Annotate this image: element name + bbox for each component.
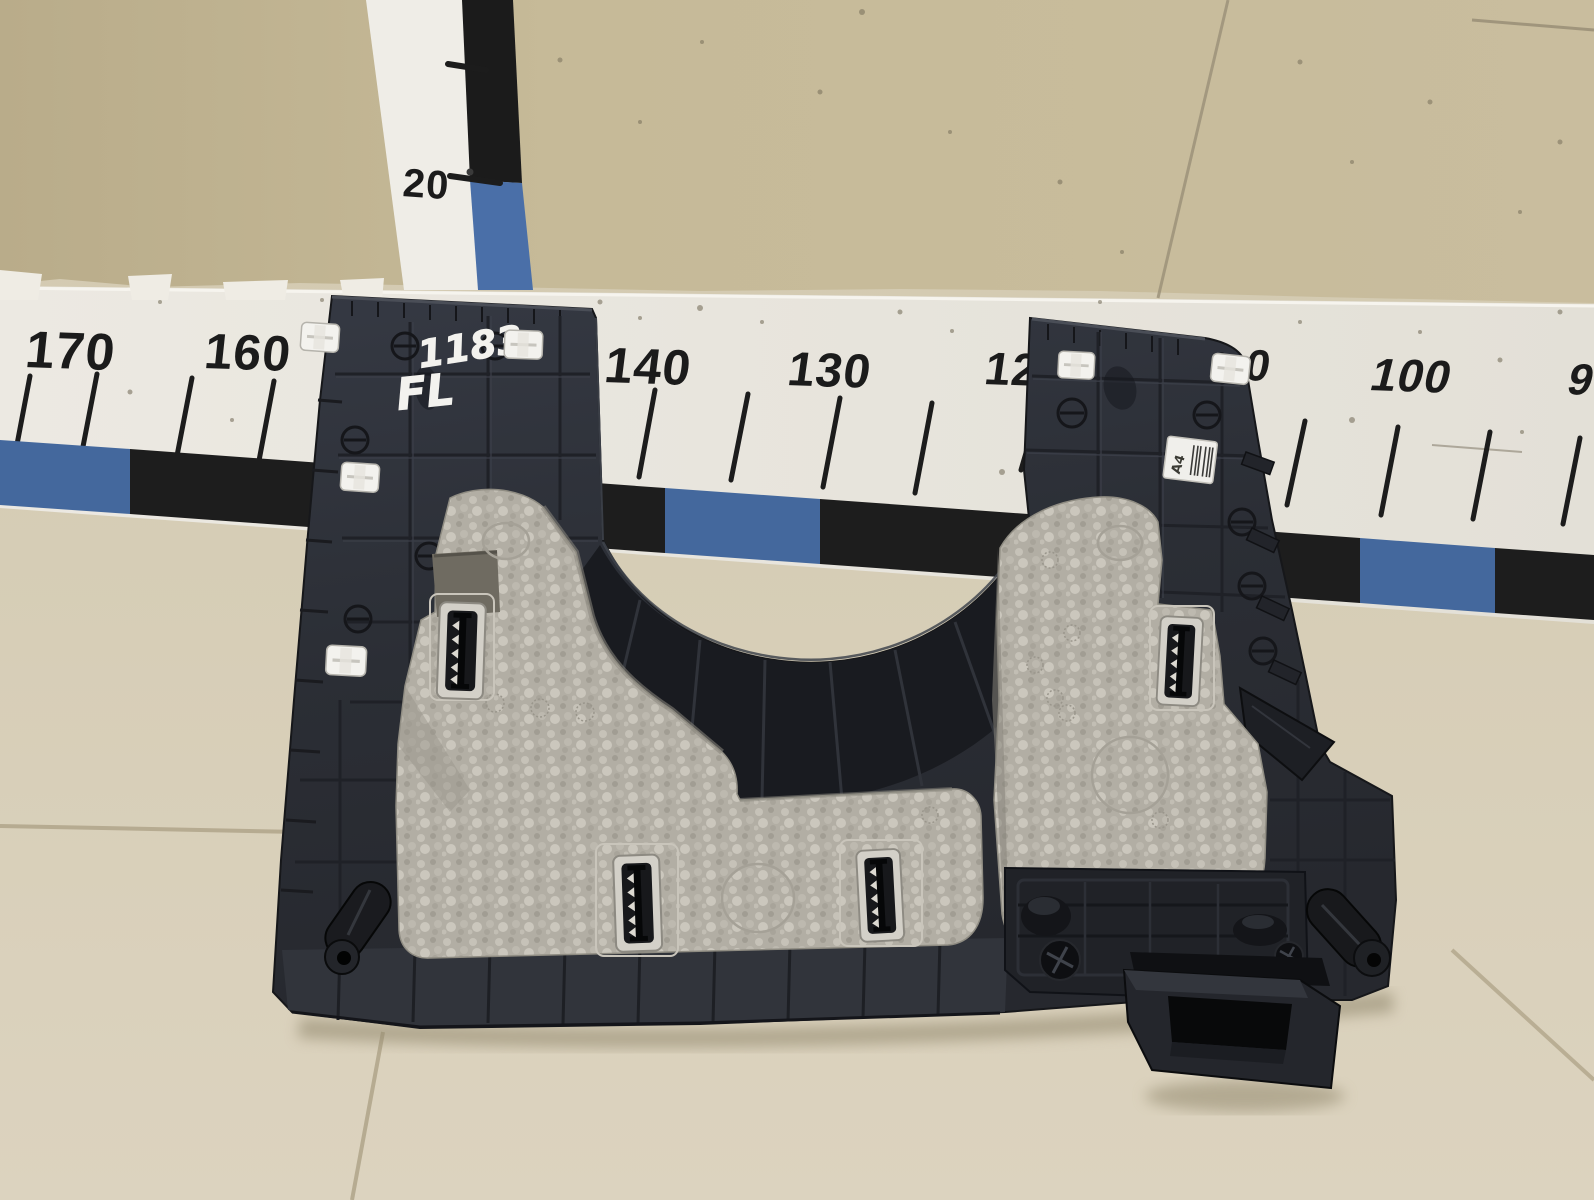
board-number-100: 100 <box>1366 349 1458 403</box>
white-retainer-clip <box>1058 351 1095 379</box>
vertical-ruler-black-segment <box>462 0 522 183</box>
board-number-170: 170 <box>23 321 119 382</box>
scene-art: 170 160 140 130 12 0 100 9 20 <box>0 0 1594 1200</box>
photo-scene: 170 160 140 130 12 0 100 9 20 <box>0 0 1594 1200</box>
barcode-sticker: A4 <box>1163 436 1218 484</box>
phillips-screw <box>1040 940 1080 980</box>
handwritten-side-code: FL <box>394 364 457 421</box>
board-number-130: 130 <box>784 342 875 399</box>
white-retainer-clip <box>504 330 543 359</box>
white-retainer-clip <box>340 462 380 493</box>
white-retainer-clip <box>1210 353 1251 385</box>
metal-clip <box>613 854 662 952</box>
vertical-ruler-label-20: 20 <box>401 161 450 208</box>
white-retainer-clip <box>325 645 366 676</box>
metal-clip <box>856 849 904 942</box>
metal-clip <box>1156 616 1203 706</box>
latch-frame <box>1124 952 1340 1088</box>
board-number-160: 160 <box>202 323 294 382</box>
latch-opening <box>1168 996 1292 1050</box>
metal-clip <box>437 602 486 700</box>
board-number-140: 140 <box>602 337 695 396</box>
wall <box>0 0 1594 303</box>
white-retainer-clip <box>300 322 340 353</box>
